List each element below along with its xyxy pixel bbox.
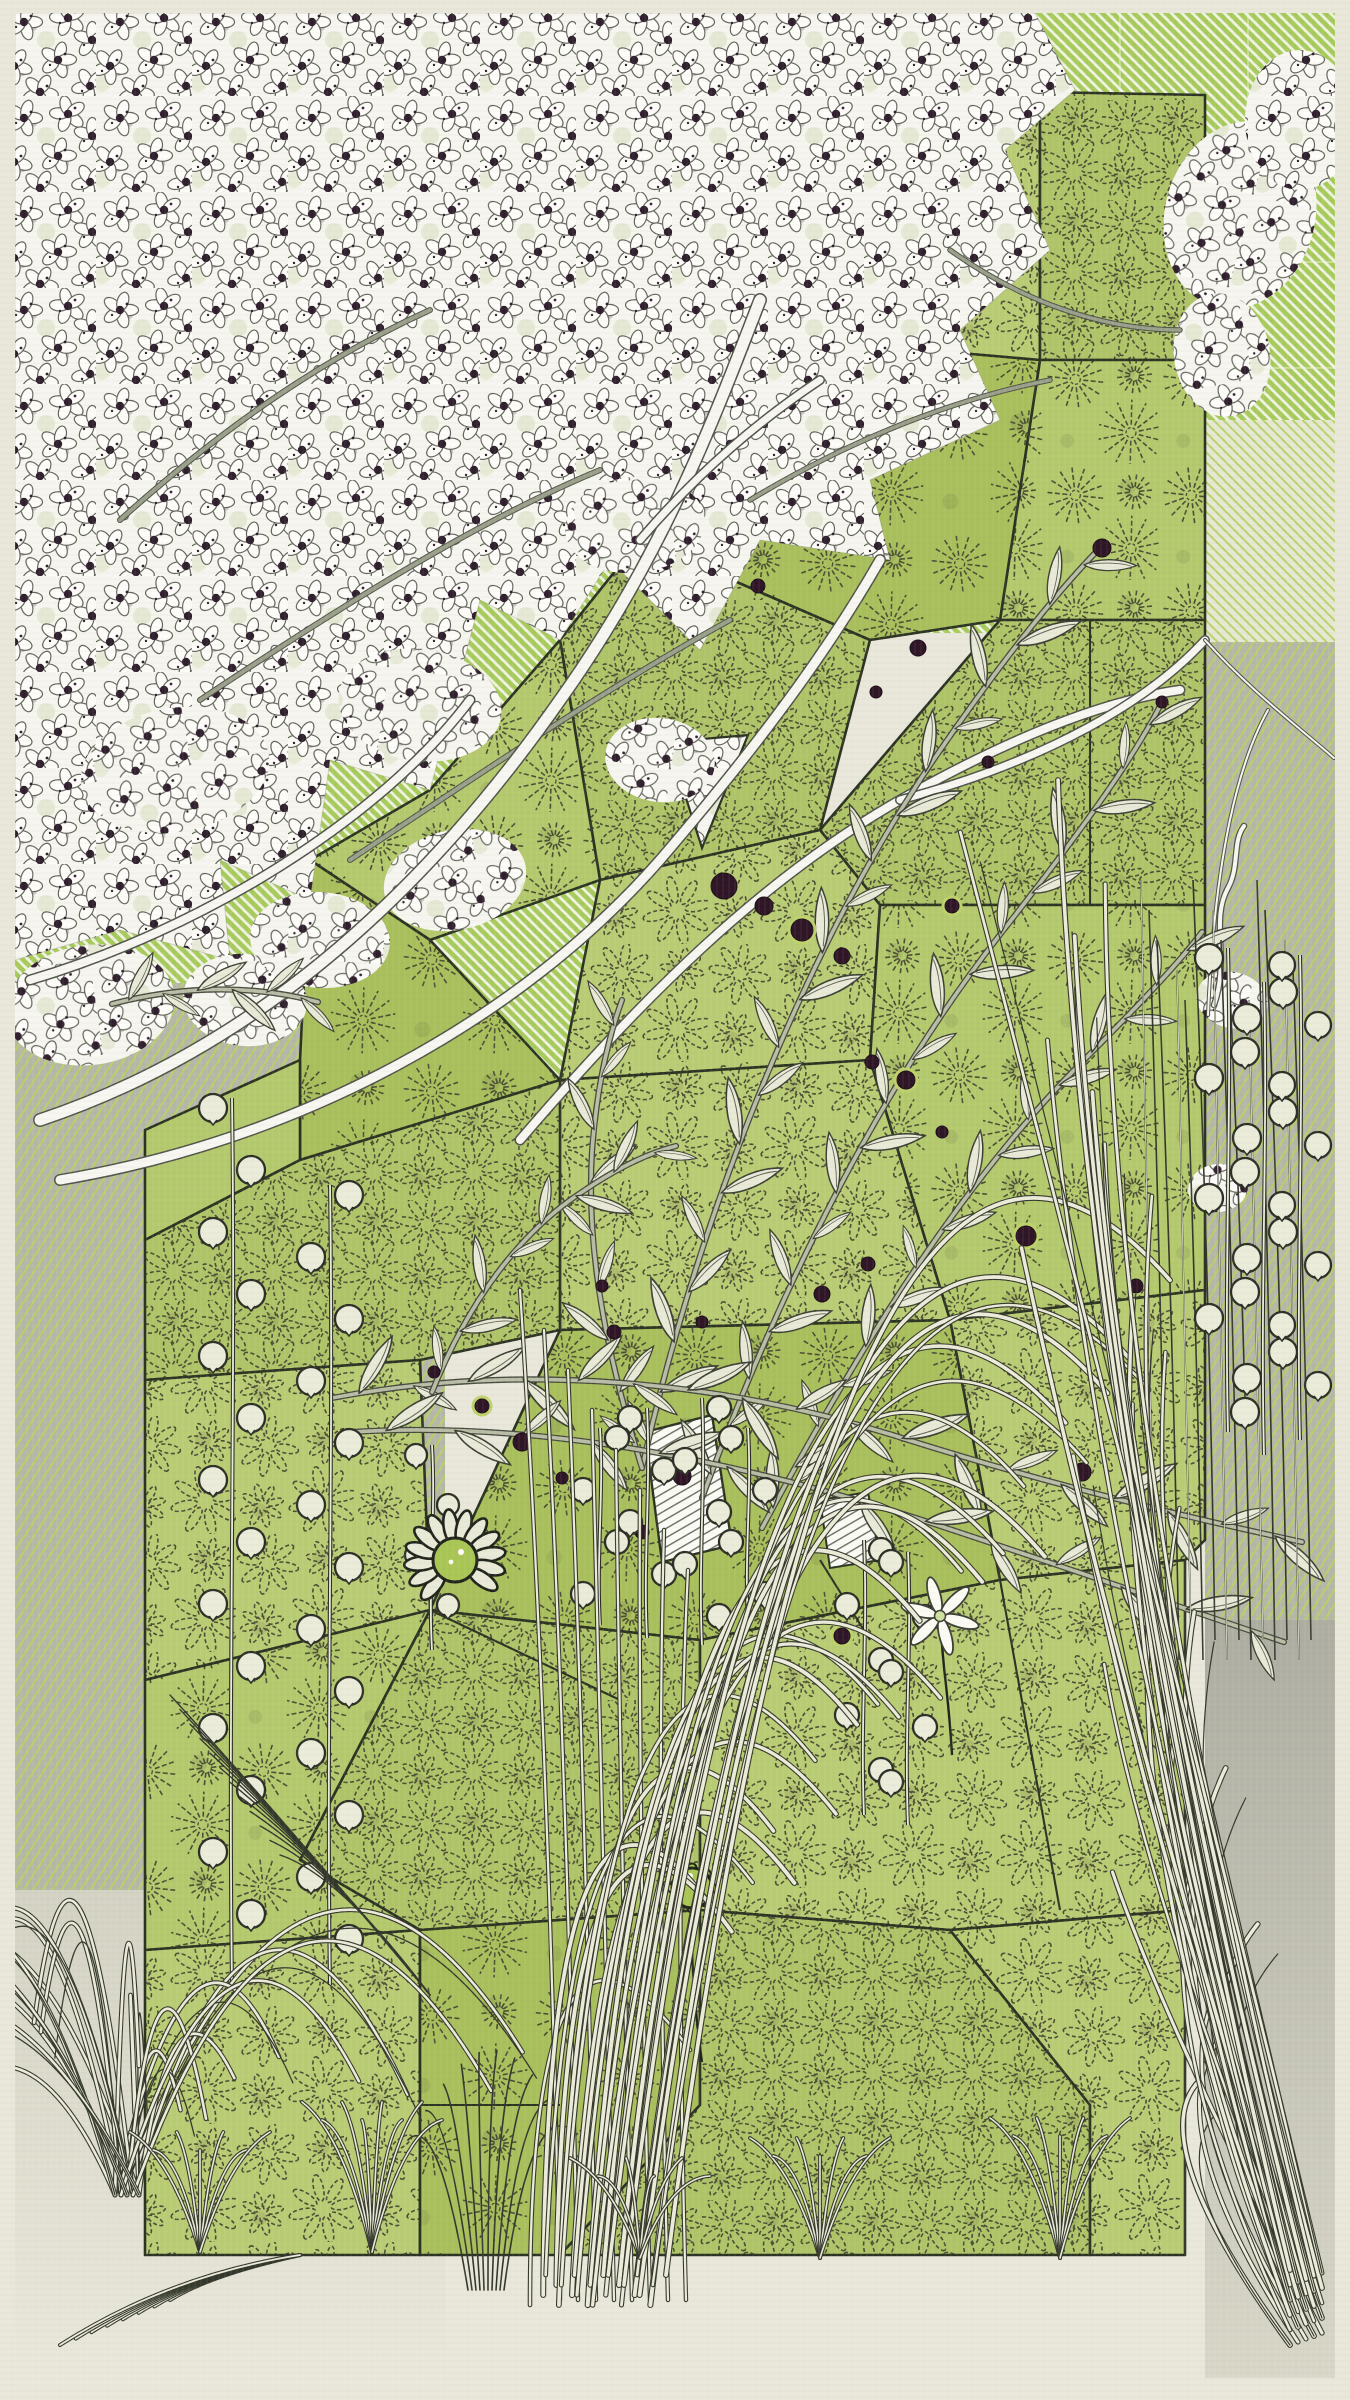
artwork-canvas xyxy=(0,0,1350,2400)
canvas-texture-overlay xyxy=(0,0,1350,2400)
botanical-patchwork-illustration xyxy=(0,0,1350,2400)
